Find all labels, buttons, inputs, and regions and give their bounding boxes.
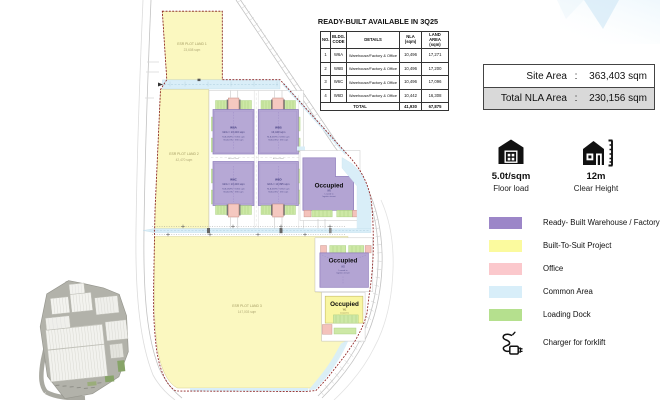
svg-text:NLA (Off.) : 590 sqm: NLA (Off.) : 590 sqm: [224, 191, 244, 194]
svg-text:Occupied: Occupied: [330, 301, 359, 308]
svg-text:W6D: W6D: [275, 178, 283, 182]
svg-text:GFA = 13,416 sqm: GFA = 13,416 sqm: [222, 182, 245, 186]
svg-text:Leased to: Leased to: [340, 312, 350, 315]
svg-text:NLA (Off.) : 590 sqm: NLA (Off.) : 590 sqm: [224, 139, 244, 142]
svg-text:NLA (W/H) : 9,906 sqm: NLA (W/H) : 9,906 sqm: [222, 188, 245, 191]
svg-text:ESR PLOT LAND 1: ESR PLOT LAND 1: [177, 42, 207, 46]
svg-text:NLA (W/H) : 9,906 sqm: NLA (W/H) : 9,906 sqm: [222, 136, 245, 139]
svg-text:13,443 sqm: 13,443 sqm: [271, 130, 286, 134]
svg-text:ESR PLOT LAND 3: ESR PLOT LAND 3: [232, 304, 262, 308]
svg-text:23,608 sqm: 23,608 sqm: [184, 48, 201, 52]
svg-text:Occupied: Occupied: [315, 182, 344, 189]
svg-text:Leased to: Leased to: [325, 193, 335, 196]
svg-text:W6B: W6B: [275, 126, 283, 130]
svg-text:NLA (W/H) : 9,906 sqm: NLA (W/H) : 9,906 sqm: [267, 136, 290, 139]
svg-text:Leased to: Leased to: [339, 269, 349, 272]
svg-text:Occupied: Occupied: [329, 258, 358, 265]
svg-text:ESR PLOT LAND 2: ESR PLOT LAND 2: [169, 152, 199, 156]
svg-text:NLA (Off.) : 590 sqm: NLA (Off.) : 590 sqm: [268, 139, 288, 142]
svg-text:Access Road: Access Road: [228, 157, 239, 160]
svg-text:logistics tenant: logistics tenant: [336, 272, 350, 275]
svg-text:Access Road: Access Road: [273, 157, 284, 160]
svg-text:NLA (Off.) : 590 sqm: NLA (Off.) : 590 sqm: [268, 191, 288, 194]
svg-text:W6C: W6C: [230, 178, 238, 182]
svg-text:147,003 sqm: 147,003 sqm: [238, 310, 257, 314]
svg-text:GFA = 13,395 sqm: GFA = 13,395 sqm: [267, 182, 290, 186]
svg-text:NLA (W/H) : 9,852 sqm: NLA (W/H) : 9,852 sqm: [267, 188, 290, 191]
svg-text:logistics tenant: logistics tenant: [322, 195, 336, 198]
svg-text:GFA = 13,416 sqm: GFA = 13,416 sqm: [222, 130, 245, 134]
svg-text:W6A: W6A: [230, 126, 238, 130]
svg-text:42,470 sqm: 42,470 sqm: [176, 158, 193, 162]
